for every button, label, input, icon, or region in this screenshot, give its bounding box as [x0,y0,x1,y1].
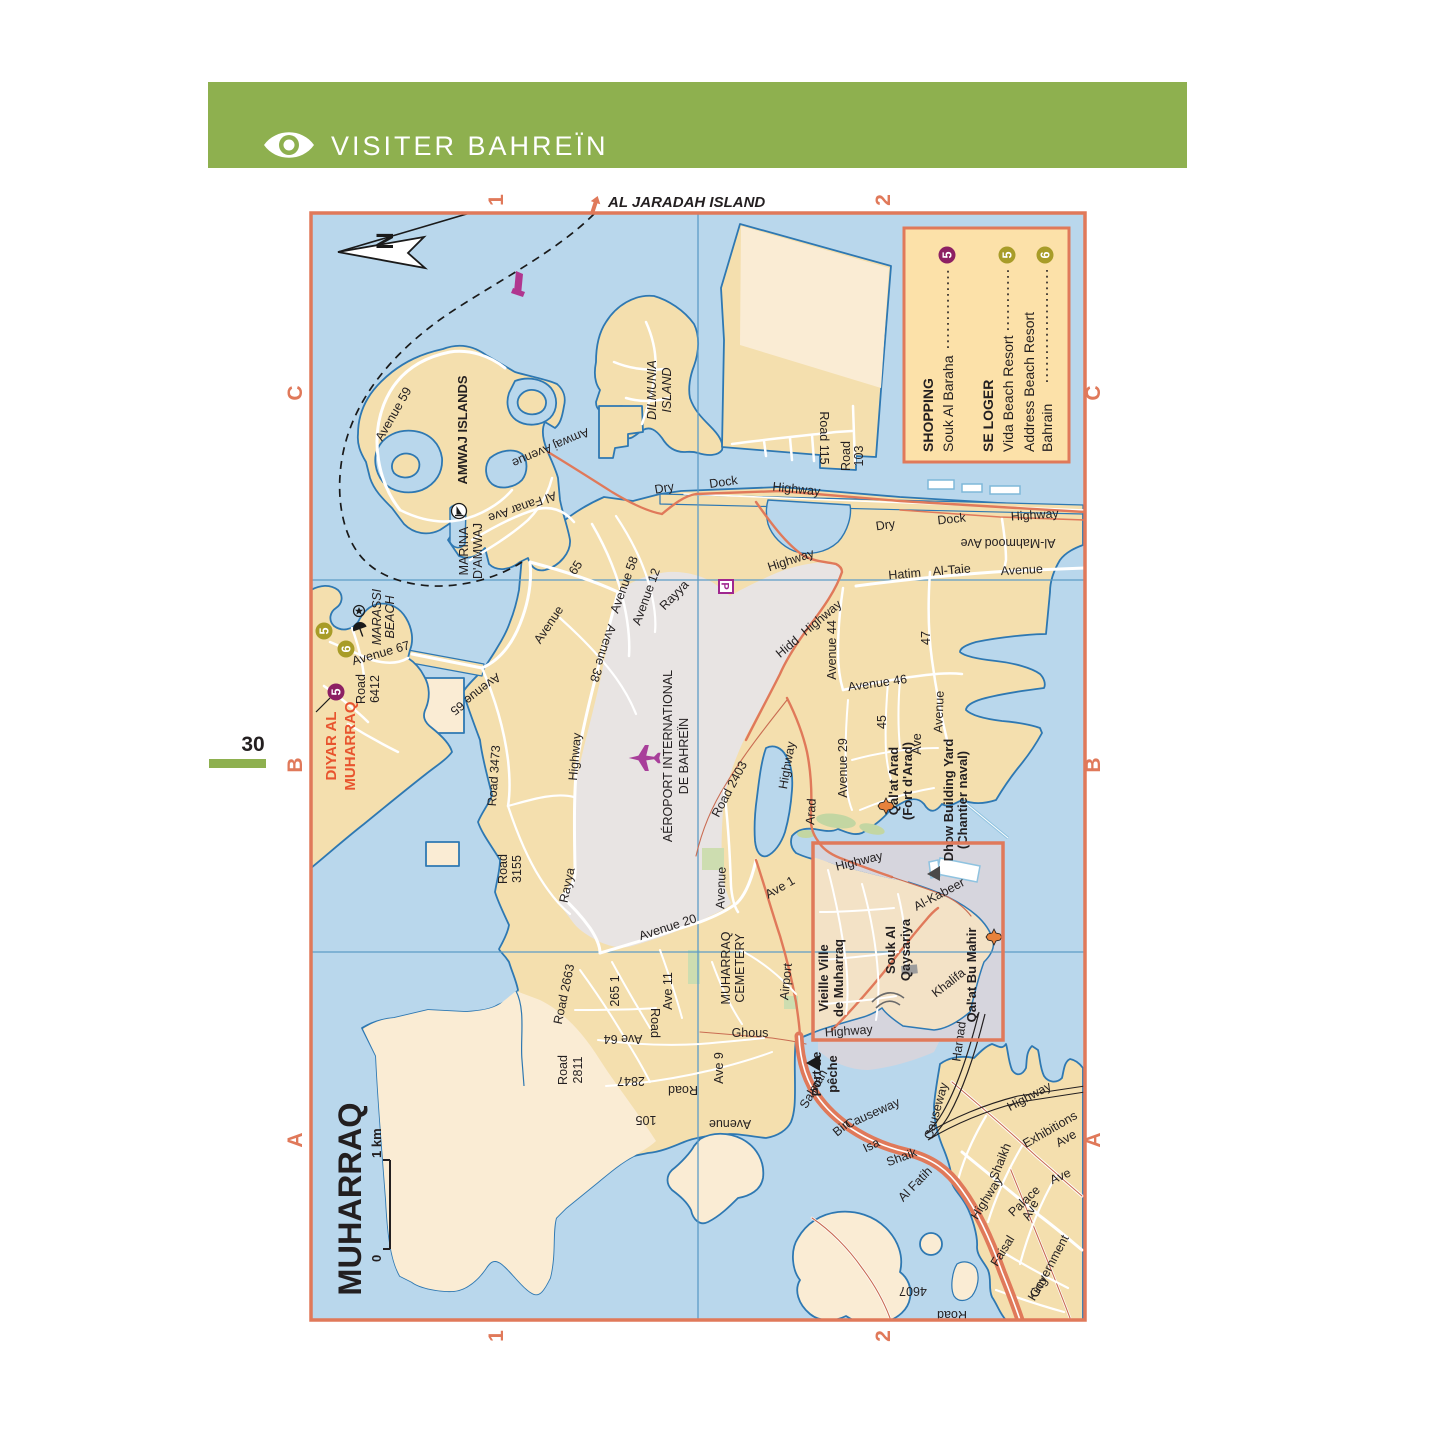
svg-text:MARASSI: MARASSI [370,588,384,645]
svg-text:SHOPPING: SHOPPING [920,378,936,452]
svg-text:C: C [284,385,307,400]
svg-text:ISLAND: ISLAND [660,367,674,412]
svg-text:(Fort d'Arad): (Fort d'Arad) [900,742,915,820]
svg-text:30: 30 [241,733,264,756]
svg-text:Road 115: Road 115 [817,411,831,464]
svg-text:5: 5 [318,627,332,634]
svg-text:Souk Al: Souk Al [883,926,898,974]
svg-text:2847: 2847 [617,1074,645,1088]
svg-text:Dry: Dry [875,517,897,534]
svg-text:MUHARRAQ: MUHARRAQ [342,701,359,790]
svg-text:2811: 2811 [571,1057,585,1084]
svg-text:47: 47 [919,631,933,645]
svg-text:AL JARADAH ISLAND: AL JARADAH ISLAND [607,194,765,211]
svg-text:6412: 6412 [368,675,382,703]
svg-text:Ave 64: Ave 64 [604,1032,643,1046]
svg-text:B: B [284,757,307,772]
svg-text:Al-Mahmood Ave: Al-Mahmood Ave [960,536,1055,550]
svg-text:MUHARRAQ: MUHARRAQ [332,1102,368,1295]
svg-text:Avenue 44: Avenue 44 [825,620,839,680]
svg-text:6: 6 [340,645,354,652]
svg-text:Avenue 29: Avenue 29 [836,738,850,798]
svg-text:Hatim: Hatim [888,566,922,583]
svg-text:Avenue: Avenue [931,690,946,733]
svg-text:P: P [719,582,731,589]
svg-text:1: 1 [485,194,508,206]
svg-text:Road: Road [354,674,368,704]
svg-text:DILMUNIA: DILMUNIA [645,360,659,420]
svg-text:(Chantier naval): (Chantier naval) [955,751,970,849]
svg-text:Souk Al Baraha: Souk Al Baraha [940,355,956,452]
svg-text:1 km: 1 km [369,1128,384,1158]
svg-text:VISITER BAHREÏN: VISITER BAHREÏN [331,131,609,161]
svg-text:DIYAR AL: DIYAR AL [323,712,340,781]
svg-text:Ave 11: Ave 11 [661,972,675,1010]
svg-text:AÉROPORT INTERNATIONAL: AÉROPORT INTERNATIONAL [660,670,675,842]
svg-text:CEMETERY: CEMETERY [733,933,747,1003]
svg-text:2: 2 [872,194,895,206]
svg-text:265 1: 265 1 [608,975,622,1006]
svg-text:AMWAJ ISLANDS: AMWAJ ISLANDS [455,375,470,484]
svg-text:de Muharraq: de Muharraq [831,939,846,1017]
svg-text:1: 1 [485,1330,508,1342]
svg-text:Qal'at Bu Mahir: Qal'at Bu Mahir [964,928,979,1023]
svg-text:D'AMWAJ: D'AMWAJ [471,523,485,579]
svg-text:MUHARRAQ: MUHARRAQ [719,931,733,1004]
svg-text:Avenue: Avenue [1000,562,1043,578]
svg-text:5: 5 [1001,251,1015,258]
svg-text:A: A [284,1132,307,1147]
svg-text:6: 6 [1039,251,1053,258]
svg-text:0: 0 [369,1255,384,1262]
svg-text:Ave 9: Ave 9 [712,1052,726,1084]
svg-text:Address Beach Resort: Address Beach Resort [1021,312,1037,452]
svg-text:105: 105 [636,1113,657,1127]
svg-text:Bahrain: Bahrain [1039,404,1055,452]
svg-text:Ghous: Ghous [732,1026,769,1040]
svg-text:SE LOGER: SE LOGER [980,380,996,452]
svg-text:BEACH: BEACH [383,594,397,638]
svg-text:Road: Road [556,1055,570,1085]
svg-text:2: 2 [872,1330,895,1342]
svg-text:Avenue: Avenue [709,1117,751,1131]
svg-text:45: 45 [875,715,889,729]
svg-text:Avenue: Avenue [713,866,728,909]
svg-text:Vieille Ville: Vieille Ville [816,944,831,1011]
svg-text:4607: 4607 [899,1284,927,1298]
svg-text:DE BAHREÏN: DE BAHREÏN [677,718,691,794]
svg-text:MARINA: MARINA [457,526,471,575]
svg-text:5: 5 [330,688,344,695]
svg-text:5: 5 [941,251,955,258]
svg-text:Arad: Arad [803,798,819,825]
svg-text:N: N [372,232,399,249]
svg-text:Qaysariya: Qaysariya [898,918,913,981]
svg-text:Road: Road [839,441,853,471]
svg-text:Road: Road [496,854,510,884]
svg-text:Vida Beach Resort: Vida Beach Resort [1000,335,1016,452]
svg-text:103: 103 [852,446,866,467]
svg-text:3155: 3155 [510,855,524,883]
svg-text:Road: Road [668,1083,698,1097]
svg-text:Road: Road [648,1008,662,1038]
